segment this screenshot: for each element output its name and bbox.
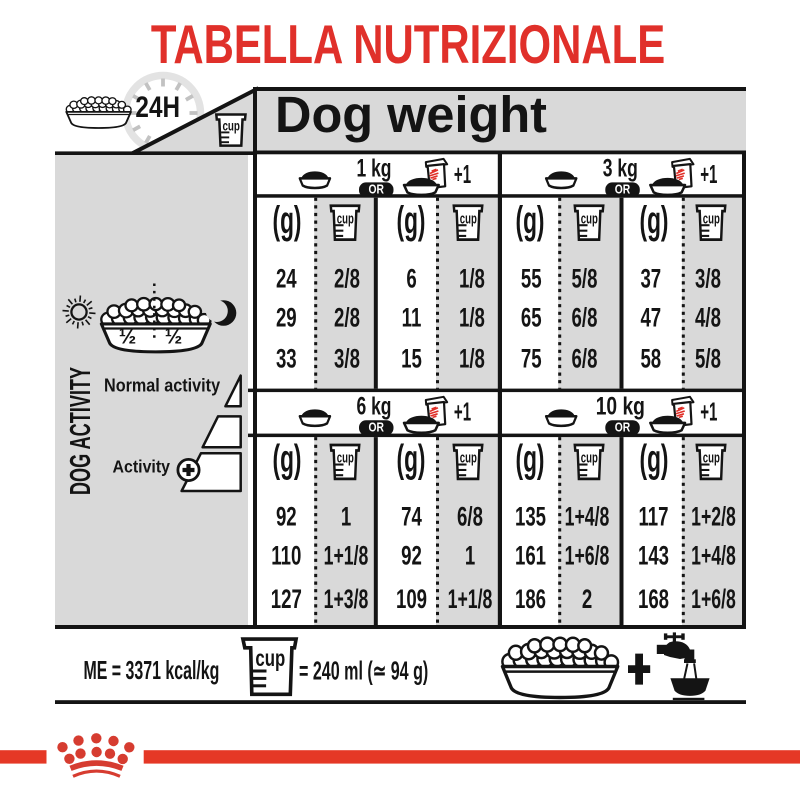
- svg-text:33: 33: [276, 343, 297, 373]
- svg-text:65: 65: [521, 302, 542, 332]
- svg-text:37: 37: [640, 263, 661, 293]
- svg-text:½: ½: [165, 326, 183, 349]
- svg-text:Activity: Activity: [113, 456, 171, 476]
- svg-text:55: 55: [521, 263, 542, 293]
- svg-text:Normal activity: Normal activity: [104, 374, 220, 395]
- svg-text:109: 109: [396, 584, 427, 614]
- svg-text:117: 117: [638, 501, 668, 531]
- svg-text:1+1/8: 1+1/8: [324, 540, 369, 571]
- svg-text:3/8: 3/8: [334, 343, 360, 373]
- svg-text:5/8: 5/8: [572, 263, 598, 293]
- svg-text:6 kg: 6 kg: [357, 391, 392, 420]
- svg-text:29: 29: [276, 302, 297, 332]
- svg-text:15: 15: [401, 343, 422, 373]
- svg-text:1+2/8: 1+2/8: [691, 501, 736, 532]
- svg-text:5/8: 5/8: [695, 343, 721, 373]
- svg-text:3 kg: 3 kg: [603, 153, 638, 182]
- svg-text:6/8: 6/8: [457, 501, 483, 531]
- svg-text:58: 58: [640, 343, 661, 373]
- svg-text:2: 2: [582, 584, 592, 614]
- svg-text:+1: +1: [454, 397, 471, 426]
- svg-text:1/8: 1/8: [459, 263, 485, 293]
- svg-text:6/8: 6/8: [572, 302, 598, 332]
- svg-text:6/8: 6/8: [572, 343, 598, 373]
- svg-text:2/8: 2/8: [334, 263, 360, 293]
- svg-text:10 kg: 10 kg: [596, 392, 645, 420]
- svg-text:186: 186: [515, 584, 546, 614]
- svg-text:1: 1: [341, 501, 351, 531]
- svg-text:168: 168: [638, 584, 669, 614]
- svg-text:1+4/8: 1+4/8: [565, 501, 610, 532]
- svg-text:11: 11: [402, 302, 422, 332]
- svg-text:47: 47: [640, 302, 661, 332]
- svg-text:(g): (g): [640, 437, 669, 481]
- svg-text:DOG ACTIVITY: DOG ACTIVITY: [65, 367, 97, 495]
- svg-text:OR: OR: [368, 422, 384, 435]
- svg-text:92: 92: [276, 501, 297, 531]
- svg-text:+1: +1: [454, 160, 471, 189]
- svg-text:OR: OR: [615, 422, 631, 435]
- svg-text:Dog weight: Dog weight: [275, 86, 547, 143]
- svg-text:OR: OR: [615, 184, 631, 197]
- svg-text:3/8: 3/8: [695, 263, 721, 293]
- svg-text:1+6/8: 1+6/8: [691, 583, 736, 614]
- svg-text:135: 135: [515, 501, 546, 531]
- svg-text:(g): (g): [273, 198, 302, 242]
- svg-text:1+1/8: 1+1/8: [448, 583, 493, 614]
- svg-text:1: 1: [465, 540, 475, 570]
- svg-text:1 kg: 1 kg: [357, 153, 392, 182]
- svg-text:OR: OR: [368, 184, 384, 197]
- svg-text:143: 143: [638, 540, 669, 570]
- svg-text:127: 127: [271, 584, 302, 614]
- svg-text:75: 75: [521, 343, 542, 373]
- svg-text:6: 6: [406, 263, 416, 293]
- svg-text:(g): (g): [397, 437, 426, 481]
- svg-text:74: 74: [401, 501, 422, 531]
- svg-text:(g): (g): [397, 198, 426, 242]
- svg-text:1+3/8: 1+3/8: [324, 583, 369, 614]
- svg-text:(g): (g): [516, 437, 545, 481]
- svg-text:TABELLA NUTRIZIONALE: TABELLA NUTRIZIONALE: [151, 15, 665, 76]
- svg-text:161: 161: [515, 540, 546, 570]
- svg-text:½: ½: [119, 326, 137, 349]
- svg-text:2/8: 2/8: [334, 302, 360, 332]
- svg-text:+1: +1: [700, 160, 717, 189]
- svg-text:1/8: 1/8: [459, 343, 485, 373]
- svg-text:1+6/8: 1+6/8: [565, 540, 610, 571]
- svg-text:92: 92: [401, 540, 422, 570]
- svg-text:cup: cup: [255, 646, 285, 671]
- svg-text:4/8: 4/8: [695, 302, 721, 332]
- svg-text:(g): (g): [516, 198, 545, 242]
- svg-text:ME = 3371 kcal/kg: ME = 3371 kcal/kg: [84, 655, 220, 685]
- svg-text:110: 110: [271, 540, 301, 570]
- svg-text:1/8: 1/8: [459, 302, 485, 332]
- svg-text:+1: +1: [700, 397, 717, 426]
- svg-text:(g): (g): [273, 437, 302, 481]
- svg-text:(g): (g): [640, 198, 669, 242]
- svg-text:24: 24: [276, 263, 297, 293]
- svg-text:24H: 24H: [135, 89, 180, 123]
- svg-text:= 240 ml (≃ 94 g): = 240 ml (≃ 94 g): [299, 655, 428, 685]
- svg-text:1+4/8: 1+4/8: [691, 540, 736, 571]
